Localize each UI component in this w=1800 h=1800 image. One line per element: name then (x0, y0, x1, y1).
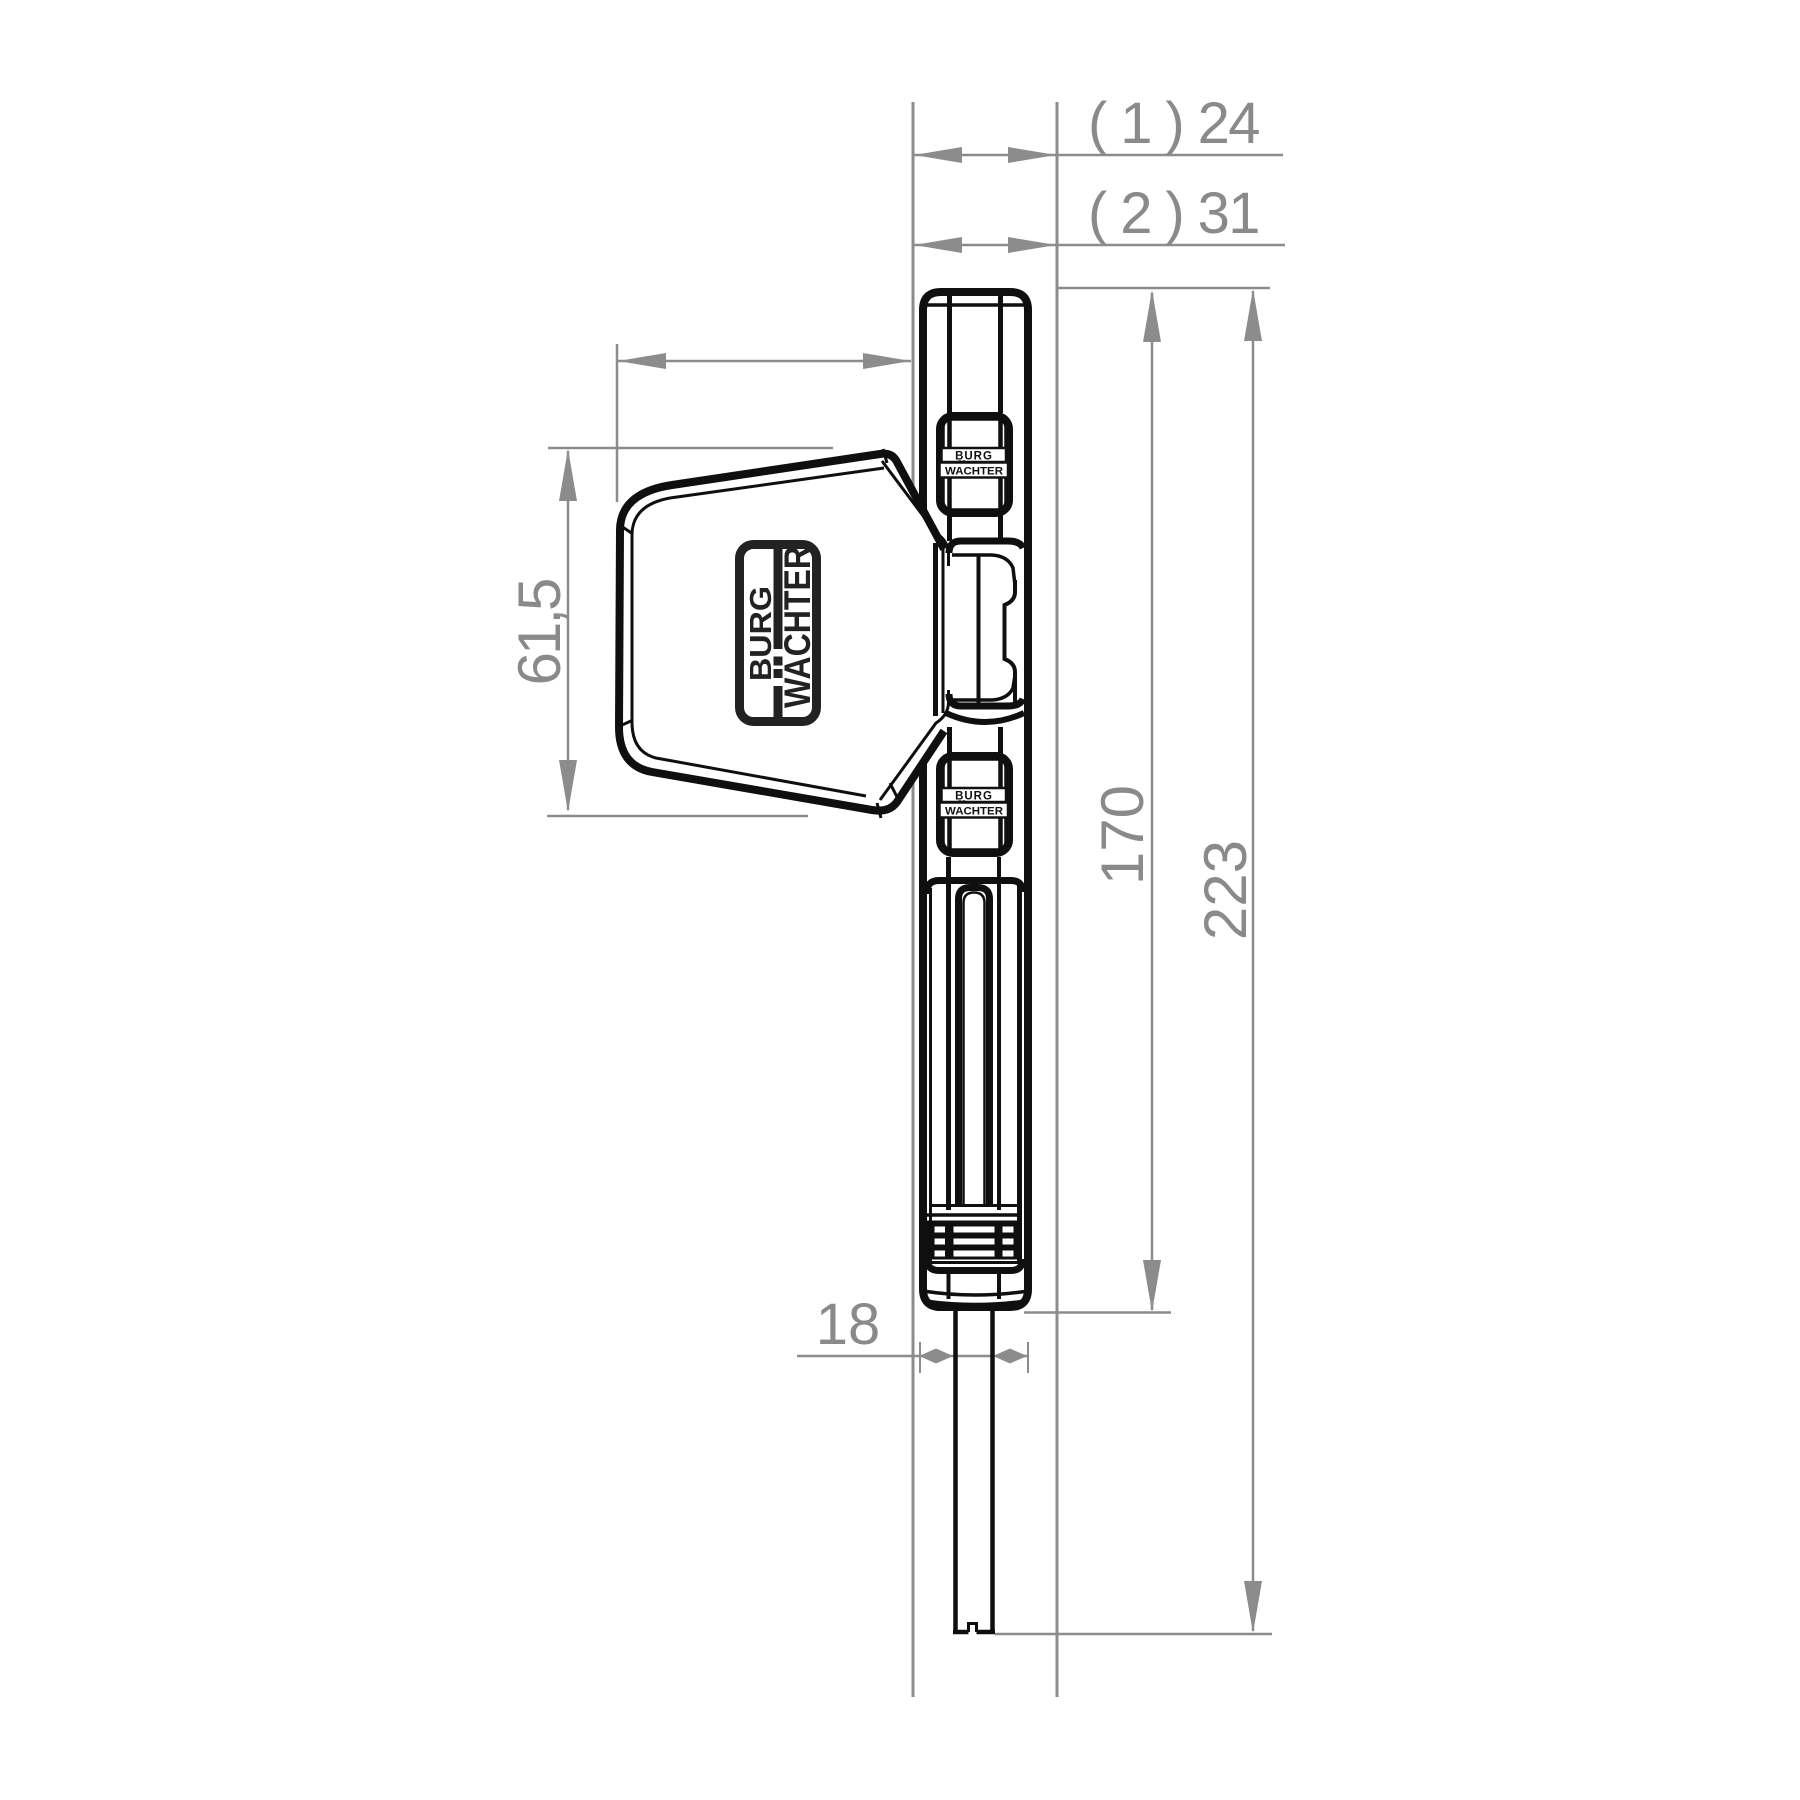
svg-text:61,5: 61,5 (506, 580, 573, 685)
svg-text:( 2 ) 31: ( 2 ) 31 (1088, 181, 1259, 246)
svg-text:( 1 ) 24: ( 1 ) 24 (1088, 91, 1259, 156)
svg-text:18: 18 (816, 1292, 881, 1357)
svg-text:BURG: BURG (743, 586, 778, 681)
svg-text:WACHTER: WACHTER (777, 546, 818, 708)
svg-text:WACHTER: WACHTER (945, 806, 1003, 818)
svg-text:223: 223 (1192, 840, 1259, 940)
svg-text:170: 170 (1089, 785, 1156, 885)
svg-text:WACHTER: WACHTER (945, 466, 1003, 478)
